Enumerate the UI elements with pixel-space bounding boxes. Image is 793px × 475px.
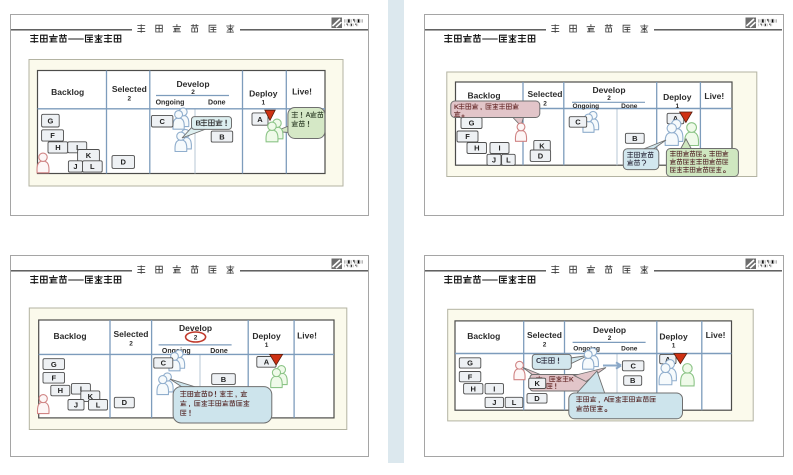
svg-text:Ongoing: Ongoing (572, 103, 599, 110)
svg-text:Backlog: Backlog (467, 331, 500, 341)
svg-text:F: F (52, 374, 57, 383)
svg-text:K: K (454, 104, 459, 111)
svg-text:2: 2 (129, 341, 133, 348)
svg-text:A: A (604, 397, 609, 404)
svg-text:J: J (492, 398, 496, 407)
svg-text:Live!: Live! (706, 330, 726, 340)
svg-text:Selected: Selected (528, 89, 563, 99)
svg-text:L: L (512, 398, 517, 407)
svg-text:B: B (630, 376, 636, 385)
svg-text:B: B (632, 134, 638, 143)
svg-text:Done: Done (621, 346, 638, 353)
svg-text:2: 2 (127, 96, 131, 103)
svg-text:Backlog: Backlog (467, 91, 500, 101)
svg-text:Selected: Selected (112, 84, 147, 94)
svg-text:C: C (159, 117, 165, 126)
svg-text:H: H (470, 384, 475, 393)
svg-text:Done: Done (621, 103, 638, 110)
svg-text:1: 1 (261, 100, 265, 107)
svg-text:1: 1 (265, 342, 269, 349)
svg-text:D: D (120, 158, 126, 167)
svg-text:K: K (86, 151, 92, 160)
svg-text:D: D (208, 391, 213, 398)
svg-text:Ongoing: Ongoing (156, 100, 185, 107)
svg-text:F: F (50, 131, 55, 140)
svg-text:Deploy: Deploy (252, 331, 281, 341)
svg-text:1: 1 (675, 103, 679, 110)
svg-text:J: J (492, 156, 496, 165)
svg-text:B: B (219, 132, 225, 141)
svg-text:Done: Done (210, 348, 228, 355)
svg-text:K: K (539, 141, 545, 150)
svg-text:2: 2 (608, 335, 612, 342)
svg-text:Deploy: Deploy (663, 92, 692, 102)
svg-text:Develop: Develop (176, 79, 209, 89)
svg-text:B: B (221, 375, 227, 384)
svg-text:Live!: Live! (297, 330, 317, 340)
svg-text:2: 2 (607, 95, 611, 102)
svg-text:J: J (73, 162, 77, 171)
svg-text:Done: Done (208, 100, 226, 107)
svg-text:A: A (264, 358, 270, 367)
svg-text:C: C (536, 356, 542, 365)
svg-text:G: G (467, 359, 473, 368)
svg-text:I: I (498, 144, 500, 153)
svg-text:D: D (538, 151, 544, 160)
svg-text:F: F (468, 372, 473, 381)
svg-text:K: K (534, 379, 540, 388)
svg-text:Deploy: Deploy (659, 331, 688, 341)
svg-text:B: B (196, 118, 202, 127)
svg-text:D: D (122, 398, 128, 407)
svg-text:2: 2 (543, 342, 547, 349)
svg-text:H: H (58, 386, 63, 395)
svg-text:G: G (51, 360, 57, 369)
svg-text:1: 1 (672, 342, 676, 349)
svg-text:C: C (575, 118, 581, 127)
svg-text:I: I (493, 384, 495, 393)
svg-text:G: G (47, 116, 53, 125)
svg-text:Live!: Live! (292, 87, 312, 97)
svg-text:C: C (161, 359, 167, 368)
svg-text:K: K (569, 376, 574, 383)
svg-text:J: J (74, 400, 78, 409)
svg-text:F: F (465, 132, 470, 141)
svg-text:Develop: Develop (592, 85, 625, 95)
svg-text:Backlog: Backlog (53, 331, 86, 341)
svg-text:Selected: Selected (114, 329, 149, 339)
svg-text:H: H (55, 143, 60, 152)
svg-text:L: L (506, 156, 511, 165)
svg-text:H: H (474, 144, 479, 153)
svg-text:A: A (306, 112, 311, 119)
svg-text:Develop: Develop (593, 325, 626, 335)
svg-text:C: C (630, 362, 636, 371)
svg-text:Selected: Selected (527, 330, 562, 340)
svg-text:Deploy: Deploy (249, 89, 278, 99)
svg-text:L: L (90, 162, 95, 171)
svg-text:2: 2 (194, 335, 198, 342)
svg-text:D: D (534, 394, 540, 403)
svg-text:2: 2 (543, 101, 547, 108)
svg-text:G: G (469, 119, 475, 128)
svg-text:Live!: Live! (704, 91, 724, 101)
svg-text:A: A (257, 115, 263, 124)
svg-text:L: L (96, 400, 101, 409)
svg-text:Backlog: Backlog (51, 87, 84, 97)
